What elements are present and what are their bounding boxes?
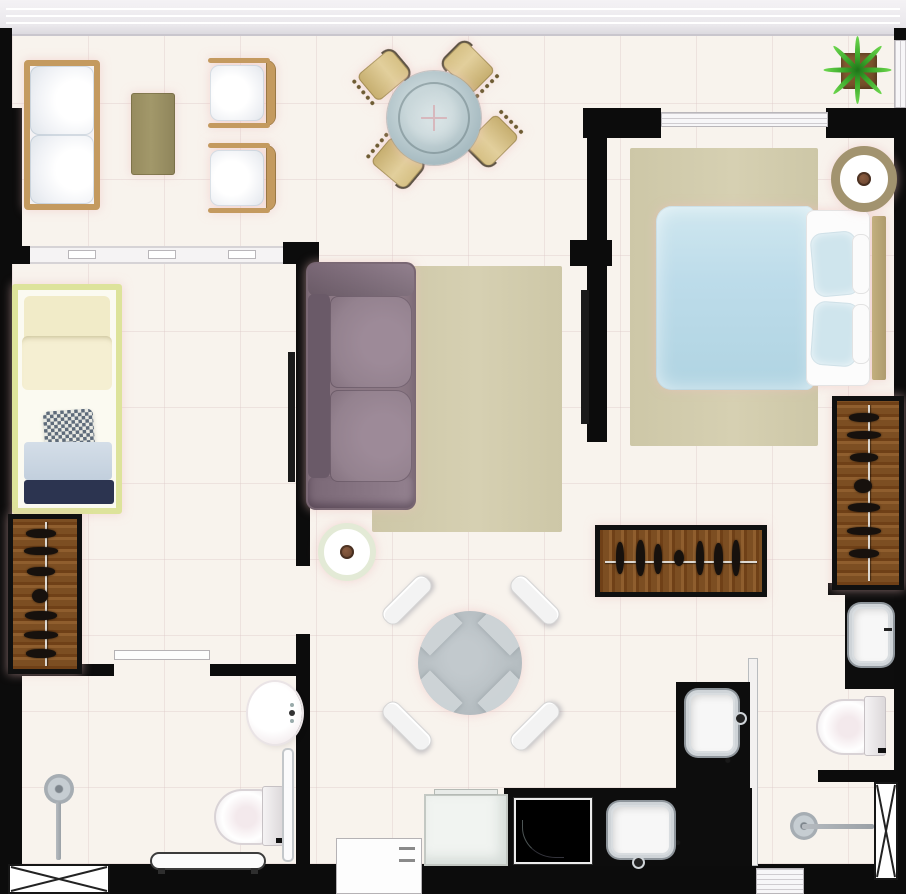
armchair-frame bbox=[208, 208, 270, 213]
lounge-door-gap bbox=[296, 566, 310, 634]
wall-bedroom1-top-left bbox=[583, 108, 661, 138]
open-wardrobe-vertical bbox=[832, 396, 904, 590]
bedroom1-door-gap bbox=[587, 442, 607, 480]
shower-glass-screen bbox=[282, 748, 294, 862]
wall-bathroom1-top-b bbox=[210, 664, 310, 676]
sofa-cushion bbox=[30, 66, 94, 135]
wall bbox=[0, 262, 12, 546]
bed-duvet bbox=[656, 206, 814, 390]
wall-bedroom1-left bbox=[587, 108, 607, 442]
armchair-frame bbox=[208, 143, 270, 148]
window-wall-top bbox=[0, 0, 906, 36]
sliding-door-track bbox=[30, 246, 283, 264]
bed-pillow bbox=[22, 336, 112, 390]
vanity-faucet bbox=[884, 628, 892, 631]
shower-arm bbox=[56, 802, 61, 860]
armchair-frame bbox=[208, 58, 270, 63]
toilet-tank bbox=[262, 786, 284, 846]
shower-arm bbox=[802, 824, 874, 829]
cup bbox=[857, 172, 871, 186]
louver-vent bbox=[8, 864, 110, 894]
chair-seat bbox=[477, 670, 522, 715]
wood-frame-sofa bbox=[24, 60, 100, 210]
kitchen-faucet bbox=[632, 856, 645, 869]
lounge-side-table bbox=[318, 523, 376, 581]
vanity-sink bbox=[849, 604, 893, 666]
round-glass-table bbox=[387, 71, 481, 165]
armchair-back bbox=[266, 60, 276, 126]
bed-pillow bbox=[852, 304, 870, 364]
right-wall-window bbox=[894, 40, 906, 108]
cup bbox=[340, 545, 354, 559]
bathroom2-toilet bbox=[816, 696, 892, 754]
entry-door bbox=[336, 838, 422, 894]
wall bbox=[0, 36, 12, 110]
floor-plan bbox=[0, 0, 906, 894]
bed-headboard bbox=[872, 216, 886, 380]
sofa-cushion bbox=[330, 296, 412, 388]
open-wardrobe-horizontal bbox=[595, 525, 767, 597]
purple-sofa bbox=[306, 262, 416, 510]
chair-seat bbox=[418, 670, 463, 715]
prep-sink bbox=[686, 690, 738, 756]
sofa-armrest bbox=[308, 264, 414, 296]
sofa-cushion bbox=[30, 135, 94, 204]
bedroom1-door-leaf bbox=[581, 290, 589, 424]
sofa-cushion bbox=[330, 390, 412, 482]
shower-head bbox=[44, 774, 74, 804]
breakfast-round-table bbox=[418, 611, 522, 715]
prep-faucet bbox=[734, 712, 747, 725]
single-bed bbox=[12, 284, 122, 514]
bedroom1-window bbox=[661, 112, 828, 127]
bath-bench bbox=[150, 852, 266, 870]
bed-pillow bbox=[852, 234, 870, 294]
wall bbox=[283, 242, 319, 264]
door-tab bbox=[148, 250, 176, 259]
wall bbox=[0, 672, 22, 894]
toilet-tank bbox=[864, 696, 886, 756]
wall bbox=[0, 108, 22, 248]
chair-seat bbox=[418, 611, 463, 656]
armchair-cushion bbox=[210, 150, 264, 206]
bathroom1-door-leaf bbox=[114, 650, 210, 660]
door-tab bbox=[228, 250, 256, 259]
armchair-cushion bbox=[210, 65, 264, 121]
coffee-table bbox=[131, 93, 175, 175]
bed-blanket-blue bbox=[24, 442, 112, 480]
kitchen-sink bbox=[608, 802, 674, 858]
open-wardrobe-bedroom2 bbox=[8, 514, 82, 674]
bed-blanket-navy bbox=[24, 480, 114, 504]
double-bed bbox=[654, 198, 886, 398]
sofa-back bbox=[308, 294, 330, 478]
bathroom1-toilet bbox=[214, 786, 290, 844]
door-tab bbox=[68, 250, 96, 259]
chair-seat bbox=[477, 611, 522, 656]
bathroom2-window bbox=[756, 868, 804, 894]
lounge-door-leaf bbox=[288, 352, 295, 482]
potted-plant bbox=[824, 36, 894, 106]
bathroom1-sink bbox=[248, 682, 302, 744]
armchair-back bbox=[266, 145, 276, 211]
armchair bbox=[206, 143, 278, 213]
armchair-frame bbox=[208, 123, 270, 128]
bedside-round-table bbox=[831, 146, 897, 212]
duct-shaft bbox=[874, 782, 898, 880]
cooktop bbox=[514, 798, 592, 864]
refrigerator bbox=[424, 794, 508, 866]
wall-bathroom2-divider bbox=[818, 770, 906, 782]
armchair bbox=[206, 58, 278, 128]
